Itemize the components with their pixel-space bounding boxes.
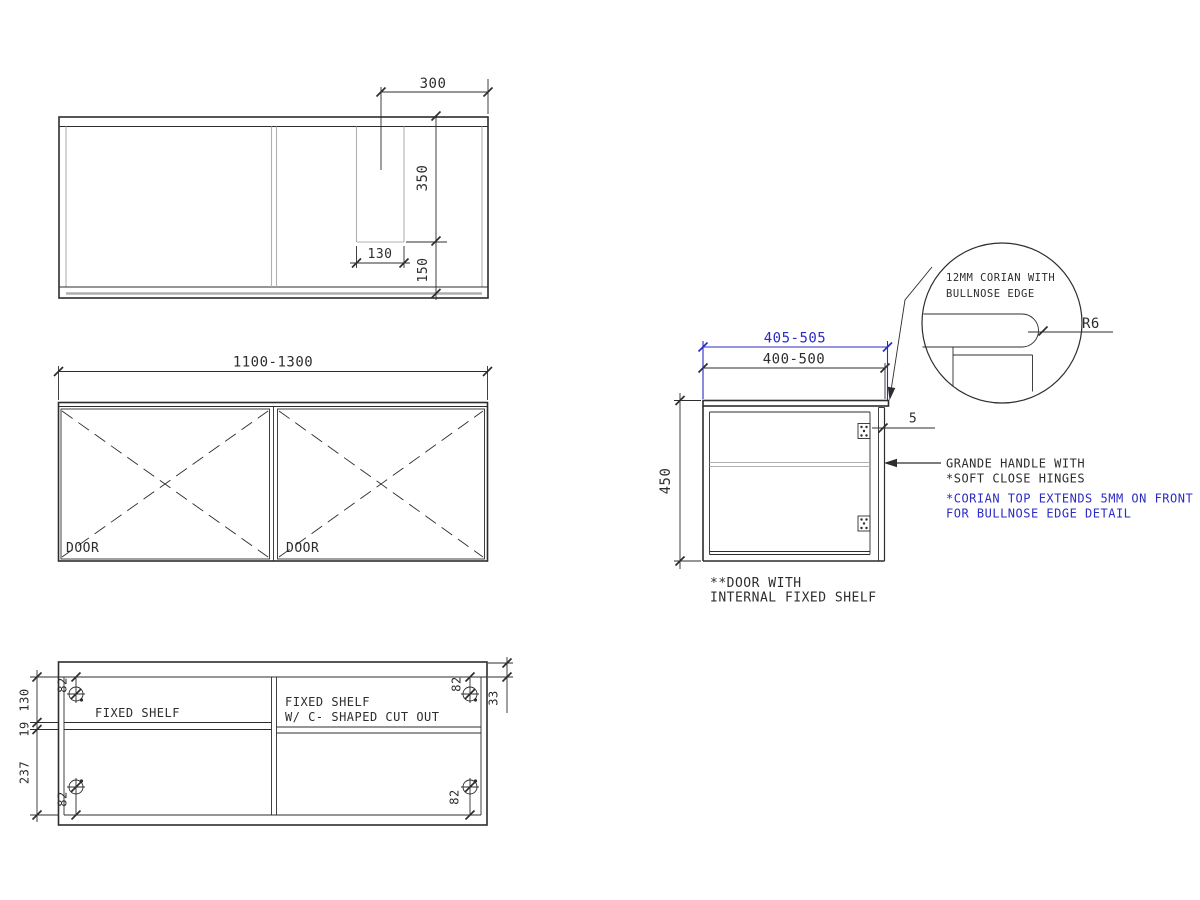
bullnose-arc xyxy=(1022,314,1039,347)
cad-drawing: 300 350 130 150 1100-1300 DOO xyxy=(0,0,1200,900)
hinge-offset-label: 82 xyxy=(56,791,70,806)
note-door-line2: INTERNAL FIXED SHELF xyxy=(710,591,877,606)
door-swing-diagonal xyxy=(62,411,268,557)
side-view: 450 400-500 405-505 5 **DOOR WITH INTERN… xyxy=(658,267,941,606)
note-handle-line2: *SOFT CLOSE HINGES xyxy=(946,472,1085,486)
handle-leader-arrowhead xyxy=(884,459,897,468)
cabinet-outline xyxy=(59,403,488,562)
detail-leader-line xyxy=(890,267,932,397)
right-shelf-label-line1: FIXED SHELF xyxy=(285,695,370,709)
detail-leader-arrowhead xyxy=(888,387,896,400)
right-shelf-label-line2: W/ C- SHAPED CUT OUT xyxy=(285,710,440,724)
hinge-plate xyxy=(858,424,870,439)
drawing-line xyxy=(474,779,477,782)
dim-text-130: 130 xyxy=(18,688,32,711)
dim-text-r6: R6 xyxy=(1082,316,1100,332)
hinge-symbol xyxy=(67,778,85,820)
drawing-line xyxy=(80,698,83,701)
front-view: 1100-1300 DOOR DOOR xyxy=(54,355,492,562)
carcass-outline xyxy=(59,662,488,825)
dim-text-405-505: 405-505 xyxy=(764,331,827,347)
dim-text-150: 150 xyxy=(416,258,431,283)
dim-text-130: 130 xyxy=(368,247,393,262)
dim-text-33: 33 xyxy=(487,690,501,705)
left-shelf-label: FIXED SHELF xyxy=(95,706,180,720)
hinge-plate xyxy=(858,516,870,531)
hinge-offset-label: 82 xyxy=(56,677,70,692)
drawing-line xyxy=(1039,327,1048,336)
top-view: 300 350 130 150 xyxy=(59,76,493,300)
drawing-line xyxy=(865,518,867,520)
dim-text-450: 450 xyxy=(658,468,674,495)
drawing-line xyxy=(865,426,867,428)
drawing-line xyxy=(863,430,865,432)
dim-text-5: 5 xyxy=(909,412,917,427)
detail-boundary xyxy=(922,243,1082,403)
drawing-line xyxy=(863,522,865,524)
dim-text-19: 19 xyxy=(18,721,32,736)
note-handle-line1: GRANDE HANDLE WITH xyxy=(946,457,1085,471)
dim-text-width: 1100-1300 xyxy=(233,355,313,371)
annotations: GRANDE HANDLE WITH *SOFT CLOSE HINGES *C… xyxy=(946,457,1193,521)
dim-text-350: 350 xyxy=(415,165,431,192)
hinge-offset-label: 82 xyxy=(450,676,464,691)
detail-note-line2: BULLNOSE EDGE xyxy=(946,288,1035,300)
note-corian-line1: *CORIAN TOP EXTENDS 5MM ON FRONT xyxy=(946,492,1193,506)
detail-note-line1: 12MM CORIAN WITH xyxy=(946,272,1055,284)
note-door-line1: **DOOR WITH xyxy=(710,576,802,591)
bottom-view: 82 82 82 82 FIXED SHELF FIXED SHELF W/ C… xyxy=(18,657,514,825)
drawing-line xyxy=(80,779,83,782)
drawing-line xyxy=(860,518,862,520)
drawing-line xyxy=(860,426,862,428)
drawing-line xyxy=(860,527,862,529)
door-left-label: DOOR xyxy=(66,541,99,556)
corian-top-slab xyxy=(703,401,889,407)
drawing-line xyxy=(474,698,477,701)
door-right-label: DOOR xyxy=(286,541,319,556)
drawing-line xyxy=(865,527,867,529)
dim-text-300: 300 xyxy=(420,76,447,92)
drawing-line xyxy=(865,434,867,436)
hinge-symbol xyxy=(461,778,479,820)
note-corian-line2: FOR BULLNOSE EDGE DETAIL xyxy=(946,507,1131,521)
detail-circle: R6 12MM CORIAN WITH BULLNOSE EDGE xyxy=(922,243,1113,403)
drawing-line xyxy=(860,434,862,436)
door-swing-diagonal xyxy=(279,411,483,557)
cad-drawing-canvas: 300 350 130 150 1100-1300 DOO xyxy=(0,0,1200,900)
dim-text-400-500: 400-500 xyxy=(763,352,826,368)
dim-text-237: 237 xyxy=(18,761,32,784)
hinge-offset-label: 82 xyxy=(448,789,462,804)
